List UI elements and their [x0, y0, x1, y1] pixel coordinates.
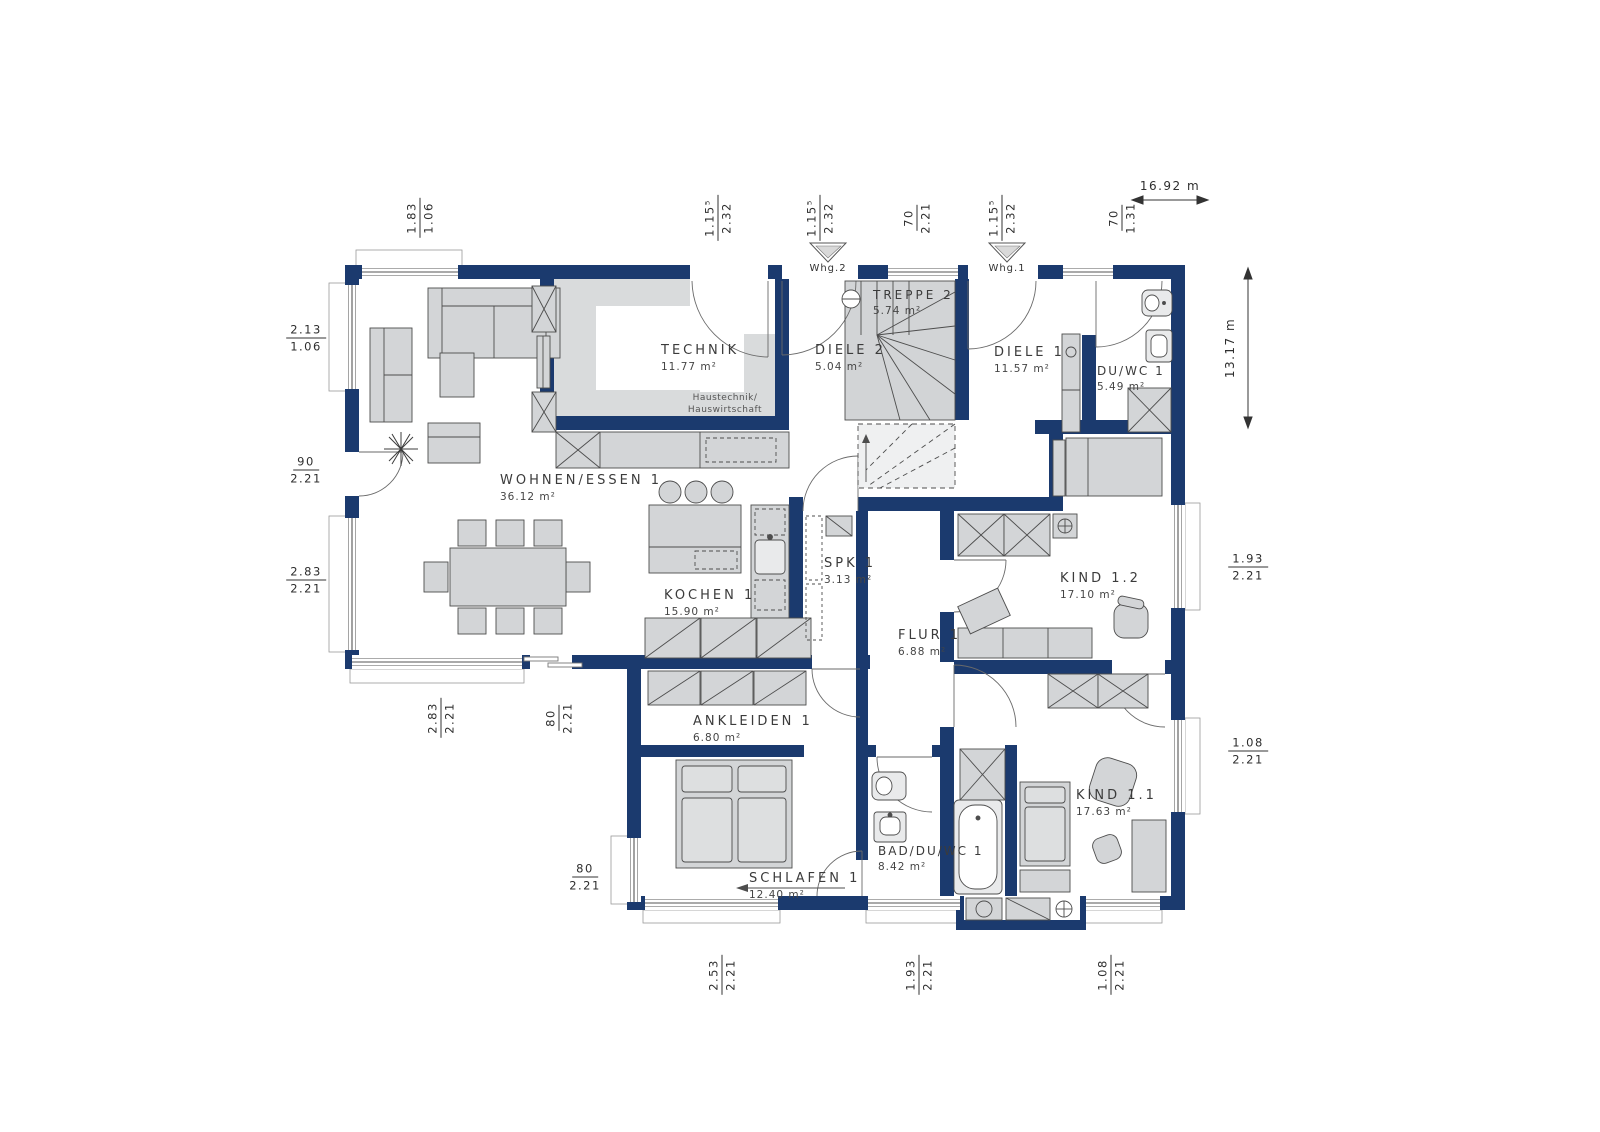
unit-marker-whg2: Whg.2	[809, 263, 846, 274]
dim-top-4: 1.15⁵2.32	[987, 195, 1018, 241]
room-label-flur: FLUR 1 6.88 m²	[898, 628, 961, 658]
dim-top-5: 701.31	[1107, 202, 1138, 234]
room-label-technik: TECHNIK 11.77 m²	[661, 343, 739, 373]
duwc1-fixtures	[1128, 290, 1172, 432]
dim-inner-bottom-1: 802.21	[544, 702, 575, 734]
shower-icon	[960, 749, 1005, 800]
dim-bottom-1: 1.932.21	[904, 955, 935, 995]
kitchen-sink-counter	[751, 505, 789, 618]
kitchen-island	[649, 481, 741, 573]
kitchen-counter	[556, 432, 789, 468]
dim-top-2: 1.15⁵2.32	[805, 195, 836, 241]
room-label-diele1: DIELE 1 11.57 m²	[994, 345, 1065, 375]
dim-left-0: 2.131.06	[286, 323, 326, 354]
dim-right-0: 1.932.21	[1228, 552, 1268, 583]
unit-marker-whg1: Whg.1	[988, 263, 1025, 274]
dim-bottom-2: 1.082.21	[1096, 955, 1127, 995]
room-label-schlafen: SCHLAFEN 1 12.40 m²	[749, 871, 860, 901]
dim-top-3: 702.21	[902, 202, 933, 234]
dim-left-2: 2.832.21	[286, 565, 326, 596]
room-label-duwc1: DU/WC 1 5.49 m²	[1097, 364, 1165, 393]
dim-right-1: 1.082.21	[1228, 736, 1268, 767]
kind11-furniture	[1020, 674, 1166, 892]
dim-left-1: 902.21	[290, 455, 322, 486]
room-label-diele2: DIELE 2 5.04 m²	[815, 343, 886, 373]
plant-icon	[384, 432, 418, 466]
technik-note: Haustechnik/ Hauswirtschaft	[655, 392, 795, 416]
room-label-bad-duwc: BAD/DU/WC 1 8.42 m²	[878, 844, 983, 873]
dim-left-lower-0: 802.21	[569, 862, 601, 893]
kitchen-lower-cabinets	[645, 618, 811, 658]
floor-plan-drawing	[0, 0, 1600, 1132]
room-label-kind12: KIND 1.2 17.10 m²	[1060, 571, 1141, 601]
dim-top-1: 1.15⁵2.32	[703, 195, 734, 241]
ankleiden-wardrobes	[648, 671, 806, 705]
overall-width-label: 16.92 m	[1140, 179, 1200, 193]
kind12-furniture	[958, 438, 1162, 658]
dining-table-set	[424, 520, 590, 634]
room-label-spk: SPK 1 3.13 m²	[824, 556, 876, 586]
room-label-kind11: KIND 1.1 17.63 m²	[1076, 788, 1157, 818]
room-label-treppe2: TREPPE 2 5.74 m²	[873, 288, 954, 317]
living-sofa-set	[370, 288, 560, 463]
floor-plan-page: TECHNIK 11.77 m² Haustechnik/ Hauswirtsc…	[0, 0, 1600, 1132]
room-label-kochen: KOCHEN 1 15.90 m²	[664, 588, 755, 618]
dim-top-0: 1.831.06	[405, 198, 436, 238]
shower-icon	[1128, 388, 1171, 432]
overall-height-label: 13.17 m	[1223, 318, 1237, 378]
room-label-wohnen-essen: WOHNEN/ESSEN 1 36.12 m²	[500, 473, 662, 503]
dim-inner-bottom-0: 2.832.21	[426, 698, 457, 738]
dim-bottom-0: 2.532.21	[707, 955, 738, 995]
entrance-markers	[810, 243, 1025, 262]
room-label-ankleiden: ANKLEIDEN 1 6.80 m²	[693, 714, 813, 744]
